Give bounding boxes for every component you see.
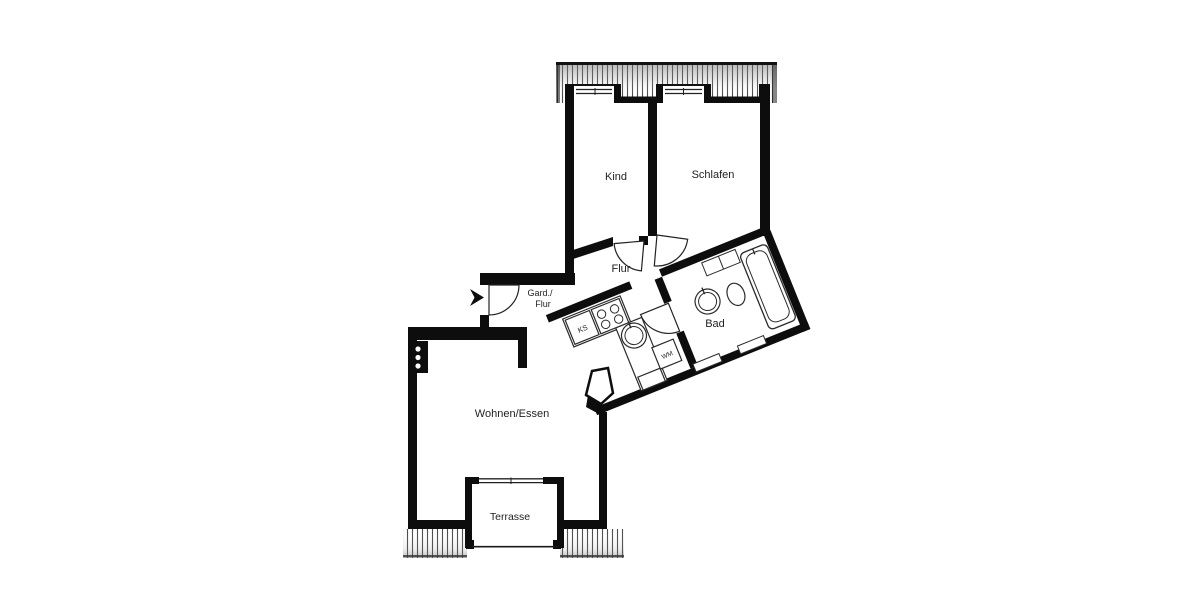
floorplan-page: KS WM — [0, 0, 1200, 600]
wall-top-right-corner — [759, 84, 770, 103]
wall-top-recessed-1 — [621, 97, 656, 104]
door-arc-entrance — [489, 285, 519, 315]
wall-kind-bottom — [570, 237, 613, 260]
floorplan-svg: KS WM — [0, 0, 1200, 600]
wall-pier-2 — [656, 84, 663, 103]
wall-terrace-right — [557, 477, 564, 548]
window-kind — [574, 84, 614, 103]
entrance-arrow-icon — [470, 289, 484, 306]
room-label-kind: Kind — [605, 171, 627, 183]
wall-bottom-left-seg — [408, 520, 465, 529]
room-label-terrasse: Terrasse — [490, 511, 530, 523]
room-label-schlafen: Schlafen — [692, 169, 735, 181]
wall-top-recessed-2 — [711, 97, 759, 104]
window-schlafen — [663, 84, 704, 103]
room-label-bad: Bad — [705, 318, 725, 330]
terrace-corner-right — [553, 540, 561, 549]
wall-right-lower — [599, 412, 607, 529]
wall-right-upper — [760, 103, 770, 236]
wall-divider-kind-schlafen — [648, 103, 657, 236]
room-label-flur: Flur — [612, 263, 631, 275]
terrace-door-jamb-left — [465, 477, 479, 484]
room-label-gard-line2: Flur — [535, 299, 551, 309]
wall-wohnen-top — [408, 327, 527, 340]
wall-entry-left-block — [480, 315, 489, 328]
room-label-wohnen: Wohnen/Essen — [475, 408, 549, 420]
terrace-door-jamb-right — [543, 477, 564, 484]
wall-gard-stub — [518, 333, 527, 368]
wall-pier-3 — [704, 84, 711, 103]
terrace-door — [479, 478, 543, 485]
terrace-corner-left — [466, 540, 474, 549]
wall-terrace-left — [465, 477, 472, 548]
hatch-band-bottom-left — [403, 529, 467, 558]
wall-pier-1 — [614, 84, 621, 103]
hatch-band-bottom-right — [560, 529, 624, 558]
wall-bottom-right-seg — [564, 520, 607, 529]
room-label-gard-line1: Gard./ — [527, 288, 553, 298]
radiator-dots — [415, 346, 420, 368]
wall-entry-top — [480, 273, 575, 285]
